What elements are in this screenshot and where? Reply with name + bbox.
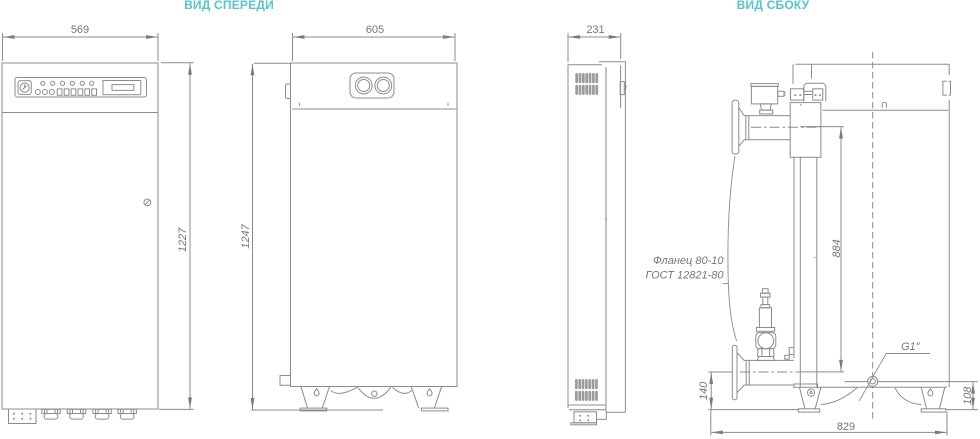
svg-text:108: 108 (962, 386, 974, 405)
svg-text:1227: 1227 (177, 227, 189, 252)
svg-text:569: 569 (71, 24, 89, 36)
svg-text:605: 605 (366, 24, 384, 36)
svg-text:G1″: G1″ (901, 341, 921, 353)
svg-text:1247: 1247 (240, 223, 252, 248)
svg-text:ГОСТ 12821-80: ГОСТ 12821-80 (645, 270, 724, 282)
svg-text:884: 884 (831, 239, 843, 257)
svg-text:ВИД СПЕРЕДИ: ВИД СПЕРЕДИ (184, 0, 274, 12)
svg-text:140: 140 (698, 381, 710, 400)
svg-text:ВИД СБОКУ: ВИД СБОКУ (737, 0, 810, 12)
svg-text:829: 829 (837, 421, 855, 433)
svg-text:231: 231 (586, 24, 604, 36)
svg-text:Фланец 80-10: Фланец 80-10 (653, 255, 724, 267)
